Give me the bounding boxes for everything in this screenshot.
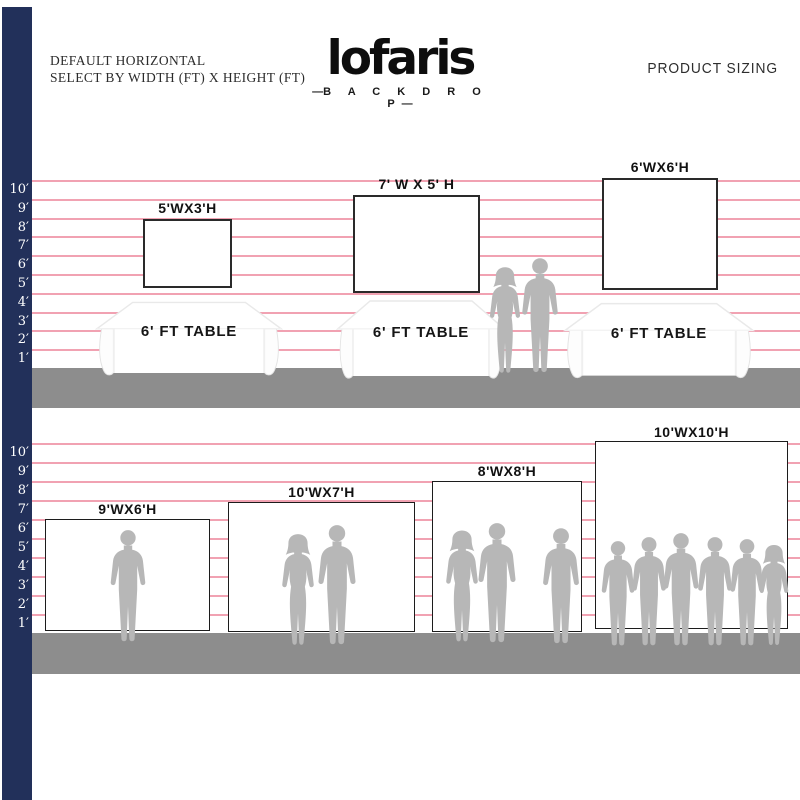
ruler-tick-5ft: 5′	[0, 276, 29, 291]
table-3-label: 6' FT TABLE	[563, 325, 755, 342]
ruler-tick-6ft: 6′	[0, 257, 29, 272]
brand-logo-wordmark: lofaris	[300, 34, 500, 84]
logo-dash-right: —	[402, 98, 413, 110]
ruler-tick-3ft: 3′	[0, 314, 29, 329]
brand-logo-subtitle: —B A C K D R O P—	[300, 86, 500, 110]
ruler-tick-9ft: 9′	[0, 464, 29, 479]
group-silhouette-icon	[597, 528, 793, 649]
backdrop-8x8-label: 8'WX8'H	[432, 463, 582, 479]
table-graphic	[563, 301, 755, 385]
ruler-tick-3ft: 3′	[0, 578, 29, 593]
product-sizing-heading: PRODUCT SIZING	[647, 60, 778, 77]
couple-silhouette-icon	[484, 254, 568, 376]
ruler-tick-4ft: 4′	[0, 295, 29, 310]
ruler-tick-6ft: 6′	[0, 521, 29, 536]
ruler-tick-1ft: 1′	[0, 351, 29, 366]
backdrop-9x6-label: 9'WX6'H	[45, 501, 210, 517]
backdrop-7x5-label: 7' W X 5' H	[353, 176, 480, 192]
page-title-line2: SELECT BY WIDTH (FT) X HEIGHT (FT)	[50, 69, 305, 86]
trio-silhouette-icon	[440, 518, 590, 647]
backdrop-6x6	[602, 178, 718, 290]
couple-silhouette-icon	[276, 520, 366, 649]
ruler-tick-4ft: 4′	[0, 559, 29, 574]
table-graphic	[336, 300, 506, 384]
ruler-tick-1ft: 1′	[0, 616, 29, 631]
page-title-line1: DEFAULT HORIZONTAL	[50, 52, 305, 69]
backdrop-7x5	[353, 195, 480, 293]
ruler-tick-2ft: 2′	[0, 597, 29, 612]
backdrop-10x10-label: 10'WX10'H	[595, 424, 788, 440]
product-sizing-chart: DEFAULT HORIZONTAL SELECT BY WIDTH (FT) …	[0, 0, 800, 800]
ruler-tick-9ft: 9′	[0, 201, 29, 216]
ruler-tick-8ft: 8′	[0, 220, 29, 235]
ruler-tick-7ft: 7′	[0, 502, 29, 517]
ruler-tick-10ft: 10′	[0, 182, 29, 197]
ruler-tick-2ft: 2′	[0, 332, 29, 347]
brand-logo: lofaris —B A C K D R O P—	[300, 34, 500, 110]
single-man-silhouette-icon	[104, 527, 152, 645]
backdrop-5x3-label: 5'WX3'H	[143, 200, 232, 216]
table-2-label: 6' FT TABLE	[336, 324, 506, 341]
page-title: DEFAULT HORIZONTAL SELECT BY WIDTH (FT) …	[50, 52, 305, 86]
ruler-tick-5ft: 5′	[0, 540, 29, 555]
man-silhouette-icon	[522, 258, 557, 372]
backdrop-6x6-label: 6'WX6'H	[602, 159, 718, 175]
logo-dash-left: —	[312, 86, 323, 98]
ruler-tick-7ft: 7′	[0, 238, 29, 253]
backdrop-5x3	[143, 219, 232, 288]
backdrop-10x7-label: 10'WX7'H	[228, 484, 415, 500]
woman-silhouette-icon	[490, 267, 520, 372]
ruler-bar	[2, 7, 32, 800]
ruler-tick-10ft: 10′	[0, 445, 29, 460]
grid-line	[32, 293, 800, 295]
table-1-label: 6' FT TABLE	[95, 323, 283, 340]
ruler-tick-8ft: 8′	[0, 483, 29, 498]
table-graphic	[95, 299, 283, 383]
